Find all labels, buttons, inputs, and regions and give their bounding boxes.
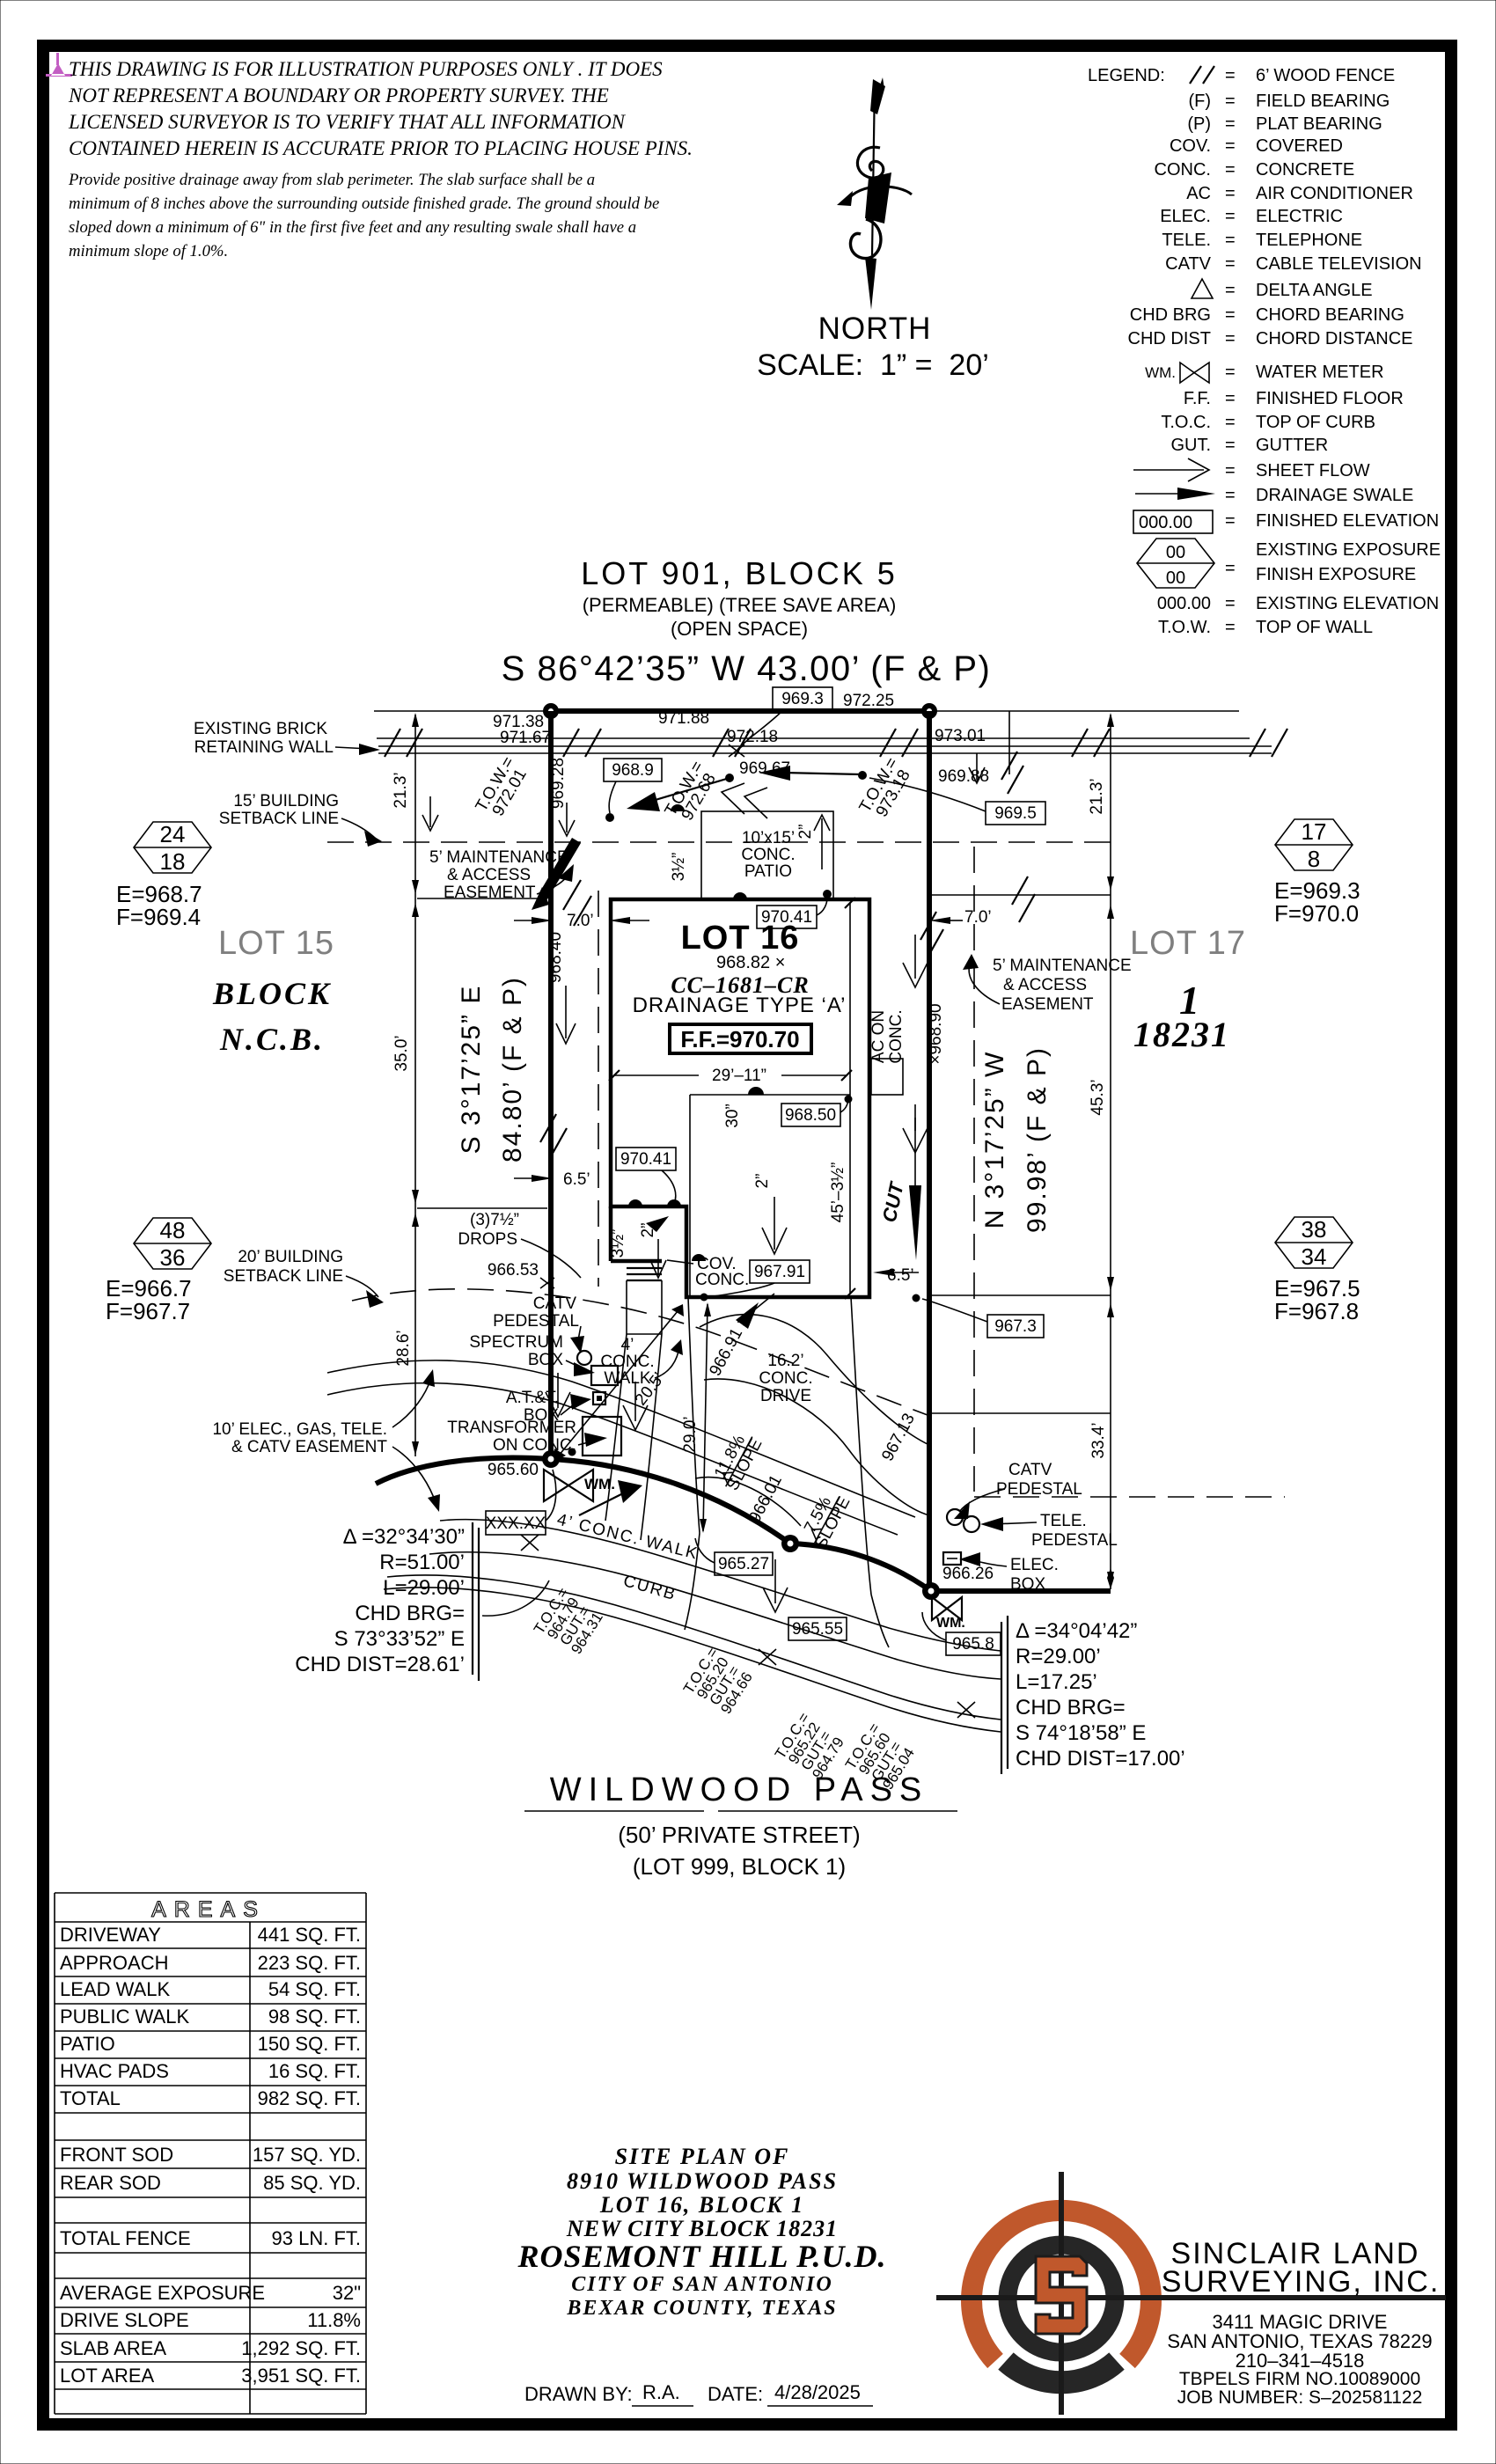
svg-text:PATIO: PATIO <box>60 2033 115 2055</box>
svg-text:ROSEMONT HILL P.U.D.: ROSEMONT HILL P.U.D. <box>517 2239 886 2274</box>
svg-text:968.9: 968.9 <box>612 761 654 780</box>
svg-text:CONC.: CONC. <box>600 1353 654 1371</box>
svg-text:4’: 4’ <box>621 1336 634 1354</box>
svg-text:DROPS: DROPS <box>458 1230 517 1249</box>
svg-text:WM.: WM. <box>584 1476 615 1492</box>
svg-text:ELEC.: ELEC. <box>1010 1556 1059 1574</box>
svg-text:24: 24 <box>160 821 186 847</box>
svg-text:T.O.W.: T.O.W. <box>1158 618 1211 637</box>
svg-text:20’ BUILDING: 20’ BUILDING <box>238 1248 343 1266</box>
svg-text:=: = <box>1225 618 1236 637</box>
svg-text:967.13: 967.13 <box>878 1411 919 1464</box>
svg-text:BOX: BOX <box>528 1351 563 1369</box>
svg-text:=: = <box>1225 254 1236 274</box>
svg-text:11.8%: 11.8% <box>307 2309 361 2331</box>
svg-text:SETBACK LINE: SETBACK LINE <box>219 810 339 828</box>
svg-text:969.3: 969.3 <box>781 690 824 708</box>
svg-text:PUBLIC WALK: PUBLIC WALK <box>60 2006 189 2028</box>
svg-text:21.3’: 21.3’ <box>1088 778 1106 814</box>
svg-text:minimum slope of 1.0%.: minimum slope of 1.0%. <box>69 242 228 260</box>
svg-text:3,951 SQ. FT.: 3,951 SQ. FT. <box>241 2365 361 2387</box>
svg-text:972.18: 972.18 <box>727 728 778 746</box>
svg-text:(F): (F) <box>1188 92 1211 111</box>
svg-text:=: = <box>1225 389 1236 408</box>
svg-text:L=17.25’: L=17.25’ <box>1016 1670 1097 1694</box>
svg-text:CHD BRG: CHD BRG <box>1130 305 1211 325</box>
svg-text:PLAT BEARING: PLAT BEARING <box>1256 114 1382 134</box>
svg-text:LOT AREA: LOT AREA <box>60 2365 155 2387</box>
svg-text:A.T.&T.: A.T.&T. <box>506 1389 559 1407</box>
svg-text:=: = <box>1225 486 1236 505</box>
svg-text:PEDESTAL: PEDESTAL <box>1031 1531 1118 1550</box>
svg-text:5’ MAINTENANCE: 5’ MAINTENANCE <box>993 957 1132 975</box>
svg-text:=: = <box>1225 207 1236 226</box>
svg-text:5’ MAINTENANCE: 5’ MAINTENANCE <box>429 848 568 867</box>
svg-text:15’ BUILDING: 15’ BUILDING <box>233 792 339 810</box>
svg-text:DRAINAGE SWALE: DRAINAGE SWALE <box>1256 486 1413 505</box>
svg-text:18231: 18231 <box>1133 1015 1230 1054</box>
svg-text:970.41: 970.41 <box>761 908 812 927</box>
svg-text:WM.: WM. <box>936 1616 965 1631</box>
svg-text:=: = <box>1225 184 1236 203</box>
svg-text:R.A.: R.A. <box>642 2381 680 2403</box>
svg-text:CATV: CATV <box>1165 254 1212 274</box>
svg-text:967.91: 967.91 <box>754 1263 805 1281</box>
svg-text:WILDWOOD PASS: WILDWOOD PASS <box>550 1771 929 1808</box>
svg-text:TELE.: TELE. <box>1162 231 1211 250</box>
svg-text:CHORD BEARING: CHORD BEARING <box>1256 305 1404 325</box>
svg-text:7.0’: 7.0’ <box>964 908 992 927</box>
svg-text:RETAINING WALL: RETAINING WALL <box>194 738 334 757</box>
svg-text:6’ WOOD FENCE: 6’ WOOD FENCE <box>1256 66 1395 85</box>
svg-text:54 SQ. FT.: 54 SQ. FT. <box>268 1978 361 2000</box>
svg-text:LEGEND:: LEGEND: <box>1088 66 1165 85</box>
svg-text:969.88: 969.88 <box>938 767 989 786</box>
svg-text:T.O.C.: T.O.C. <box>1161 413 1211 432</box>
svg-text:4’ CONC. WALK: 4’ CONC. WALK <box>555 1511 700 1564</box>
svg-text:EXISTING BRICK: EXISTING BRICK <box>194 720 327 738</box>
svg-text:(PERMEABLE) (TREE SAVE AREA): (PERMEABLE) (TREE SAVE AREA) <box>583 594 897 616</box>
svg-text:TBPELS FIRM NO.10089000: TBPELS FIRM NO.10089000 <box>1179 2369 1420 2389</box>
svg-text:JOB NUMBER: S–202581122: JOB NUMBER: S–202581122 <box>1177 2387 1423 2408</box>
svg-text:SHEET FLOW: SHEET FLOW <box>1256 461 1370 480</box>
svg-text:000.00: 000.00 <box>1157 594 1211 613</box>
svg-text:THIS DRAWING IS FOR ILLUSTRATI: THIS DRAWING IS FOR ILLUSTRATION PURPOSE… <box>69 58 663 80</box>
svg-text:AREAS: AREAS <box>151 1897 266 1922</box>
svg-text:NOT REPRESENT A BOUNDARY OR PR: NOT REPRESENT A BOUNDARY OR PROPERTY SUR… <box>68 84 609 106</box>
svg-text:Δ =32°34’30”: Δ =32°34’30” <box>343 1525 465 1549</box>
svg-text:TOTAL: TOTAL <box>60 2087 121 2109</box>
svg-text:AC: AC <box>1186 184 1211 203</box>
svg-text:S 73°33’52” E: S 73°33’52” E <box>334 1627 465 1651</box>
svg-text:=: = <box>1225 559 1236 578</box>
svg-text:CONTAINED HEREIN IS ACCURATE P: CONTAINED HEREIN IS ACCURATE PRIOR TO PL… <box>69 137 693 159</box>
svg-text:F.F.: F.F. <box>1184 389 1211 408</box>
svg-text:00: 00 <box>1166 543 1185 562</box>
svg-text:XXX.XX: XXX.XX <box>486 1514 546 1533</box>
svg-text:971.88: 971.88 <box>658 709 709 728</box>
svg-text:45’–3½”: 45’–3½” <box>829 1162 847 1223</box>
svg-text:TOP OF WALL: TOP OF WALL <box>1256 618 1373 637</box>
svg-text:30”: 30” <box>723 1104 742 1127</box>
svg-text:150 SQ. FT.: 150 SQ. FT. <box>258 2033 361 2055</box>
svg-text:3½”: 3½” <box>670 853 688 882</box>
svg-text:PEDESTAL: PEDESTAL <box>996 1480 1082 1499</box>
svg-text:CHD BRG=: CHD BRG= <box>355 1602 465 1625</box>
svg-text:SCALE: 1” = 20’: SCALE: 1” = 20’ <box>757 348 989 382</box>
svg-text:85 SQ. YD.: 85 SQ. YD. <box>263 2172 361 2194</box>
svg-text:968.40: 968.40 <box>546 932 565 983</box>
svg-text:965.8: 965.8 <box>952 1635 994 1654</box>
svg-text:DATE:: DATE: <box>708 2383 763 2405</box>
svg-text:36: 36 <box>160 1244 186 1271</box>
svg-text:FINISHED FLOOR: FINISHED FLOOR <box>1256 389 1404 408</box>
svg-text:CATV: CATV <box>533 1294 577 1313</box>
svg-text:98 SQ. FT.: 98 SQ. FT. <box>268 2006 361 2028</box>
svg-text:=: = <box>1225 329 1236 348</box>
svg-text:WM.: WM. <box>1145 364 1176 381</box>
svg-text:F=970.0: F=970.0 <box>1274 900 1359 927</box>
svg-text:BOX: BOX <box>1010 1575 1045 1594</box>
svg-text:EXISTING EXPOSURE: EXISTING EXPOSURE <box>1256 540 1441 560</box>
svg-text:R=51.00’: R=51.00’ <box>379 1551 465 1574</box>
svg-text:GUTTER: GUTTER <box>1256 436 1328 455</box>
svg-text:APPROACH: APPROACH <box>60 1952 168 1974</box>
svg-text:29.0’: 29.0’ <box>681 1416 700 1452</box>
svg-text:S 3°17’25” E: S 3°17’25” E <box>457 985 486 1155</box>
svg-text:966.26: 966.26 <box>942 1565 994 1583</box>
svg-text:968.50: 968.50 <box>785 1106 836 1125</box>
svg-text:TOP OF CURB: TOP OF CURB <box>1256 413 1375 432</box>
svg-text:COV.: COV. <box>1170 136 1211 156</box>
svg-text:FRONT SOD: FRONT SOD <box>60 2144 173 2166</box>
svg-text:DRIVEWAY: DRIVEWAY <box>60 1924 161 1946</box>
svg-text:PEDESTAL: PEDESTAL <box>493 1312 579 1331</box>
svg-text:35.0’: 35.0’ <box>392 1035 411 1071</box>
svg-text:CHD DIST=17.00’: CHD DIST=17.00’ <box>1016 1747 1185 1771</box>
svg-text:CONC.: CONC. <box>887 1009 906 1063</box>
svg-text:SLAB AREA: SLAB AREA <box>60 2337 166 2359</box>
svg-text:SETBACK LINE: SETBACK LINE <box>224 1267 343 1286</box>
svg-text:REAR SOD: REAR SOD <box>60 2172 161 2194</box>
svg-text:R=29.00’: R=29.00’ <box>1016 1645 1101 1668</box>
svg-text:CONC.: CONC. <box>741 846 795 864</box>
svg-text:972.25: 972.25 <box>843 692 894 710</box>
svg-text:000.00: 000.00 <box>1139 513 1192 532</box>
svg-text:sloped down a minimum of 6" in: sloped down a minimum of 6" in the first… <box>69 218 636 237</box>
svg-text:34: 34 <box>1302 1243 1327 1270</box>
svg-text:F.F.=970.70: F.F.=970.70 <box>680 1026 799 1052</box>
svg-text:SPECTRUM: SPECTRUM <box>469 1333 563 1352</box>
svg-text:(P): (P) <box>1187 114 1211 134</box>
svg-text:COVERED: COVERED <box>1256 136 1343 156</box>
svg-text:CURB: CURB <box>621 1572 678 1604</box>
svg-text:CHORD DISTANCE: CHORD DISTANCE <box>1256 329 1413 348</box>
svg-text:45.3’: 45.3’ <box>1089 1079 1107 1115</box>
svg-text:=: = <box>1225 413 1236 432</box>
svg-text:CHD BRG=: CHD BRG= <box>1016 1696 1126 1720</box>
svg-text:=: = <box>1225 594 1236 613</box>
svg-text:(3)7½”: (3)7½” <box>470 1211 519 1229</box>
svg-text:CUT: CUT <box>878 1179 908 1224</box>
svg-text:CONC.: CONC. <box>695 1271 749 1289</box>
svg-text:TELEPHONE: TELEPHONE <box>1256 231 1362 250</box>
svg-text:GUT.: GUT. <box>1170 436 1211 455</box>
svg-text:SURVEYING, INC.: SURVEYING, INC. <box>1162 2265 1441 2299</box>
svg-text:CHD DIST: CHD DIST <box>1128 329 1211 348</box>
svg-text:(OPEN SPACE): (OPEN SPACE) <box>671 618 808 640</box>
svg-text:EASEMENT: EASEMENT <box>444 884 536 902</box>
svg-text:6.5’: 6.5’ <box>887 1266 914 1285</box>
svg-text:L=29.00’: L=29.00’ <box>383 1576 465 1600</box>
svg-text:CITY OF SAN ANTONIO: CITY OF SAN ANTONIO <box>571 2273 832 2296</box>
svg-text:=: = <box>1225 92 1236 111</box>
svg-text:CATV: CATV <box>1008 1461 1052 1479</box>
svg-text:PATIO: PATIO <box>744 862 792 881</box>
svg-text:F=969.4: F=969.4 <box>116 904 201 930</box>
svg-text:965.60: 965.60 <box>488 1461 539 1479</box>
svg-text:DRAWN BY:: DRAWN BY: <box>524 2383 633 2405</box>
svg-text:BLOCK: BLOCK <box>212 976 332 1011</box>
svg-text:CONC.: CONC. <box>759 1369 812 1388</box>
svg-text:S 74°18’58” E: S 74°18’58” E <box>1016 1721 1146 1745</box>
svg-text:LOT 15: LOT 15 <box>218 925 334 962</box>
svg-text:=: = <box>1225 160 1236 180</box>
svg-text:CABLE TELEVISION: CABLE TELEVISION <box>1256 254 1422 274</box>
svg-text:3½”: 3½” <box>609 1229 627 1258</box>
svg-text:(50’ PRIVATE STREET): (50’ PRIVATE STREET) <box>618 1822 860 1848</box>
svg-text:2”: 2” <box>796 825 815 840</box>
svg-text:HVAC PADS: HVAC PADS <box>60 2060 169 2082</box>
svg-text:965.55: 965.55 <box>792 1620 843 1639</box>
svg-text:AIR CONDITIONER: AIR CONDITIONER <box>1256 184 1413 203</box>
svg-text:441 SQ. FT.: 441 SQ. FT. <box>258 1924 361 1946</box>
svg-text:SITE PLAN OF: SITE PLAN OF <box>615 2144 790 2169</box>
svg-text:2”: 2” <box>753 1174 772 1189</box>
svg-text:968.82 ×: 968.82 × <box>716 953 785 972</box>
svg-text:EASEMENT: EASEMENT <box>1001 995 1094 1014</box>
svg-text:=: = <box>1225 281 1236 300</box>
svg-text:& CATV EASEMENT: & CATV EASEMENT <box>231 1438 387 1456</box>
svg-text:DRIVE SLOPE: DRIVE SLOPE <box>60 2309 189 2331</box>
svg-text:93 LN. FT.: 93 LN. FT. <box>272 2227 361 2249</box>
svg-text:ELEC.: ELEC. <box>1160 207 1211 226</box>
svg-text:LEAD WALK: LEAD WALK <box>60 1978 170 2000</box>
svg-text:LICENSED SURVEYOR IS TO VERIFY: LICENSED SURVEYOR IS TO VERIFY THAT ALL … <box>68 111 627 133</box>
svg-text:17: 17 <box>1302 818 1327 845</box>
svg-text:FINISHED ELEVATION: FINISHED ELEVATION <box>1256 511 1439 531</box>
svg-text:WATER METER: WATER METER <box>1256 363 1384 382</box>
svg-text:TELE.: TELE. <box>1040 1512 1087 1530</box>
svg-text:N.C.B.: N.C.B. <box>219 1022 325 1057</box>
svg-text:S 86°42’35” W 43.00’ (F & P): S 86°42’35” W 43.00’ (F & P) <box>502 649 992 688</box>
svg-text:Δ =34°04’42”: Δ =34°04’42” <box>1016 1619 1137 1643</box>
svg-text:10’ ELEC., GAS, TELE.: 10’ ELEC., GAS, TELE. <box>212 1420 387 1439</box>
svg-text:CONCRETE: CONCRETE <box>1256 160 1354 180</box>
svg-text:& ACCESS: & ACCESS <box>447 866 531 884</box>
svg-text:N 3°17’25” W: N 3°17’25” W <box>980 1051 1009 1229</box>
svg-text:223 SQ. FT.: 223 SQ. FT. <box>258 1952 361 1974</box>
svg-text:18: 18 <box>160 848 186 875</box>
svg-text:99.98’ (F & P): 99.98’ (F & P) <box>1023 1046 1052 1233</box>
svg-text:6.5’: 6.5’ <box>563 1170 590 1189</box>
svg-text:FIELD BEARING: FIELD BEARING <box>1256 92 1390 111</box>
svg-text:=: = <box>1225 231 1236 250</box>
svg-text:=: = <box>1225 511 1236 531</box>
svg-text:EXISTING ELEVATION: EXISTING ELEVATION <box>1256 594 1439 613</box>
svg-text:& ACCESS: & ACCESS <box>1003 976 1087 994</box>
svg-text:33.4’: 33.4’ <box>1089 1422 1108 1458</box>
svg-text:DELTA ANGLE: DELTA ANGLE <box>1256 281 1373 300</box>
svg-text:ELECTRIC: ELECTRIC <box>1256 207 1343 226</box>
svg-text:TRANSFORMER: TRANSFORMER <box>447 1419 576 1437</box>
svg-text:157 SQ. YD.: 157 SQ. YD. <box>253 2144 361 2166</box>
svg-text:ON CONC.: ON CONC. <box>493 1436 576 1455</box>
svg-text:F=967.8: F=967.8 <box>1274 1298 1359 1324</box>
svg-text:Provide positive drainage away: Provide positive drainage away from slab… <box>68 171 595 189</box>
svg-text:=: = <box>1225 114 1236 134</box>
svg-text:21.3’: 21.3’ <box>392 772 410 808</box>
svg-text:F=967.7: F=967.7 <box>106 1298 190 1324</box>
svg-text:966.53: 966.53 <box>488 1261 539 1280</box>
svg-text:(LOT 999, BLOCK 1): (LOT 999, BLOCK 1) <box>633 1853 846 1880</box>
svg-text:8: 8 <box>1308 846 1320 872</box>
svg-text:AC ON: AC ON <box>869 1010 888 1063</box>
svg-text:8910 WILDWOOD PASS: 8910 WILDWOOD PASS <box>567 2168 838 2194</box>
svg-text:38: 38 <box>1302 1216 1327 1243</box>
svg-text:48: 48 <box>160 1217 186 1243</box>
svg-text:CONC.: CONC. <box>1155 160 1211 180</box>
svg-text:DRAINAGE TYPE ‘A’: DRAINAGE TYPE ‘A’ <box>633 994 847 1017</box>
svg-text:4/28/2025: 4/28/2025 <box>774 2381 861 2403</box>
svg-text:=: = <box>1225 136 1236 156</box>
svg-text:84.80’ (F & P): 84.80’ (F & P) <box>498 976 527 1162</box>
svg-text:CHD DIST=28.61’: CHD DIST=28.61’ <box>295 1653 465 1676</box>
svg-text:LOT 901, BLOCK 5: LOT 901, BLOCK 5 <box>581 555 898 591</box>
svg-text:=: = <box>1225 305 1236 325</box>
svg-text:970.41: 970.41 <box>620 1150 671 1169</box>
svg-text:FINISH EXPOSURE: FINISH EXPOSURE <box>1256 565 1416 584</box>
svg-text:LOT 16, BLOCK 1: LOT 16, BLOCK 1 <box>599 2192 804 2218</box>
svg-text:971.67: 971.67 <box>500 729 551 747</box>
svg-text:965.27: 965.27 <box>718 1555 769 1573</box>
svg-text:=: = <box>1225 363 1236 382</box>
svg-text:=: = <box>1225 66 1236 85</box>
svg-text:10’x15’: 10’x15’ <box>742 829 795 847</box>
svg-text:NORTH: NORTH <box>818 312 932 346</box>
svg-text:973.01: 973.01 <box>935 727 986 745</box>
svg-text:16 SQ. FT.: 16 SQ. FT. <box>268 2060 361 2082</box>
svg-text:NEW CITY BLOCK 18231: NEW CITY BLOCK 18231 <box>566 2216 838 2241</box>
svg-text:32": 32" <box>333 2282 361 2304</box>
svg-text:967.3: 967.3 <box>994 1317 1037 1336</box>
svg-text:LOT 17: LOT 17 <box>1130 925 1246 962</box>
svg-text:=: = <box>1225 461 1236 480</box>
svg-text:29’–11”: 29’–11” <box>712 1067 766 1085</box>
svg-text:=: = <box>1225 436 1236 455</box>
svg-text:1,292 SQ. FT.: 1,292 SQ. FT. <box>241 2337 361 2359</box>
svg-text:AVERAGE EXPOSURE: AVERAGE EXPOSURE <box>60 2282 265 2304</box>
svg-text:969.5: 969.5 <box>994 804 1037 823</box>
svg-text:982 SQ. FT.: 982 SQ. FT. <box>258 2087 361 2109</box>
svg-text:minimum of 8 inches above the: minimum of 8 inches above the surroundin… <box>69 194 659 213</box>
svg-text:00: 00 <box>1166 568 1185 588</box>
svg-text:BEXAR COUNTY, TEXAS: BEXAR COUNTY, TEXAS <box>566 2297 837 2320</box>
svg-text:TOTAL FENCE: TOTAL FENCE <box>60 2227 191 2249</box>
